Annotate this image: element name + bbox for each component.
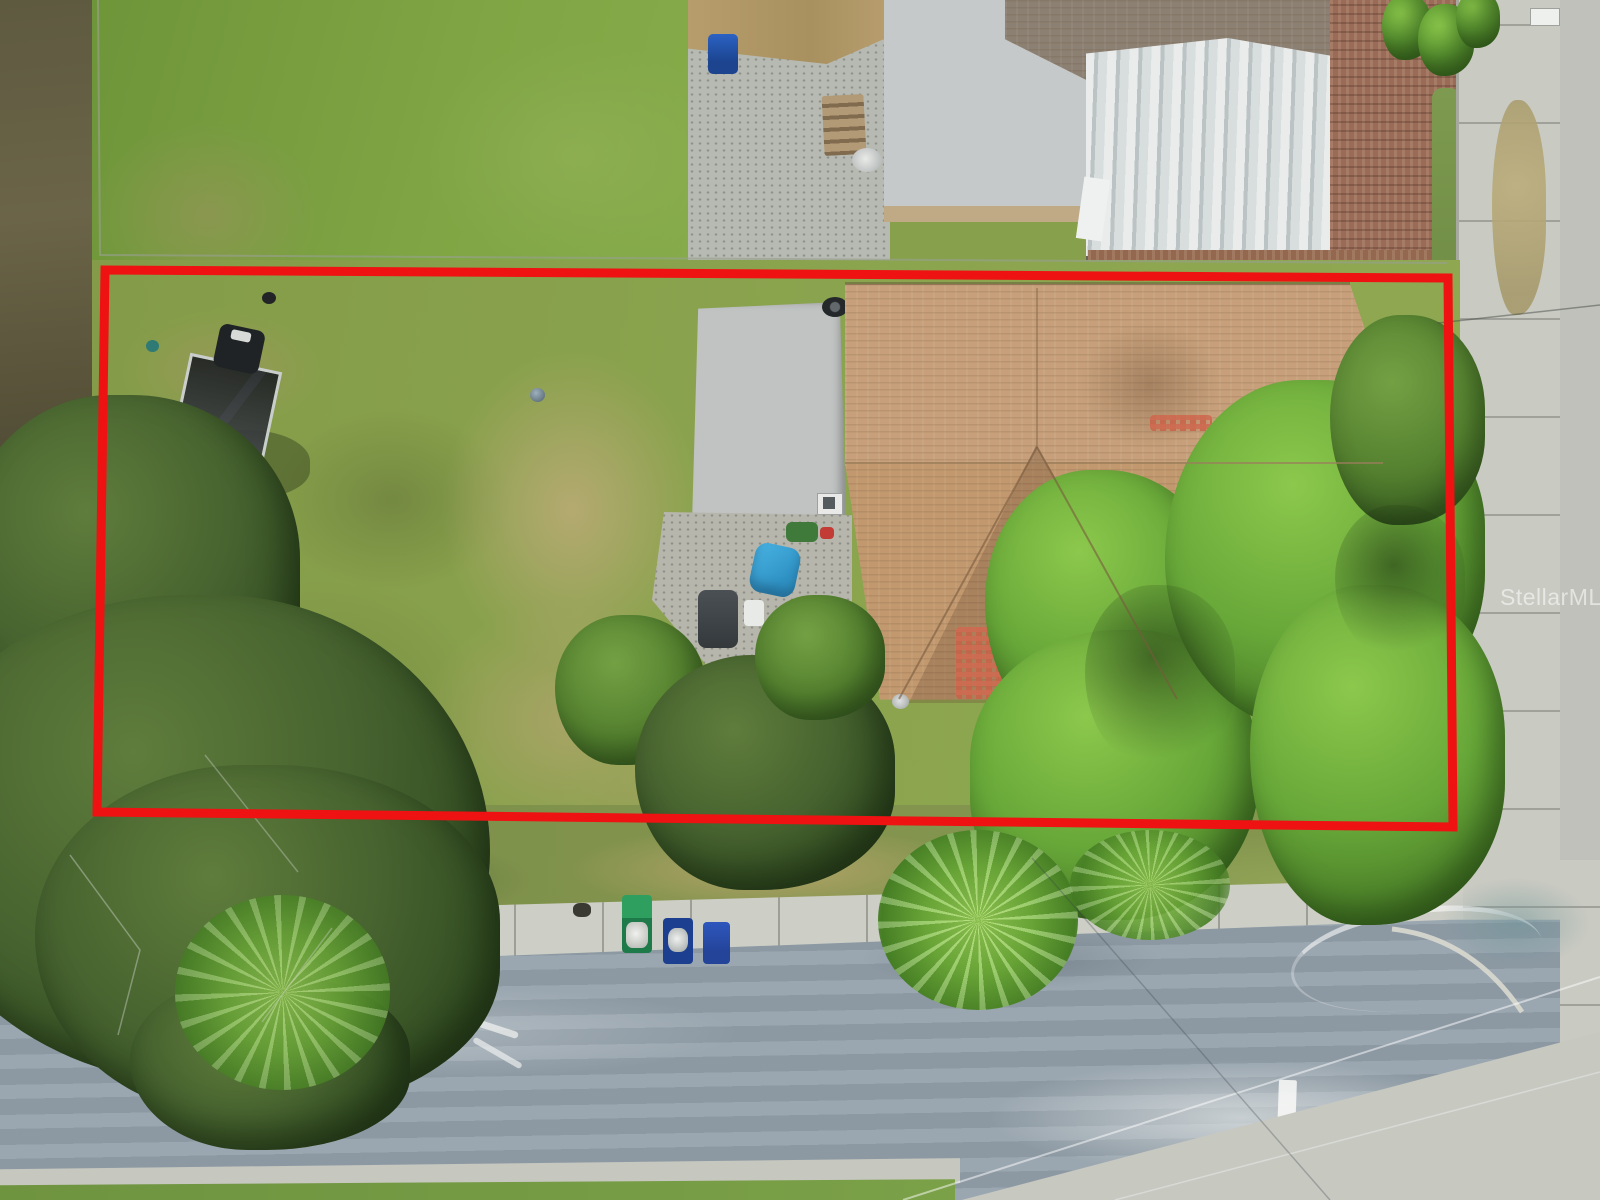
roof-valley-right <box>1037 447 1177 699</box>
stellar-mls-watermark: StellarMLS <box>1500 584 1600 611</box>
roof-valley-left <box>899 447 1037 699</box>
parcel-boundary-outline <box>97 270 1453 827</box>
aerial-photo: StellarMLS <box>0 0 1600 1200</box>
overlay-annotations <box>0 0 1600 1200</box>
oak-branch-3 <box>262 928 332 1022</box>
curb-return-arc <box>1392 929 1522 1012</box>
power-line-1 <box>903 977 1600 1200</box>
power-line-3 <box>1032 858 1330 1200</box>
power-line-top-right <box>1438 305 1600 323</box>
chain-link-fence <box>98 0 1447 263</box>
power-line-2 <box>1115 1072 1600 1200</box>
oak-branch-1 <box>70 855 140 1035</box>
